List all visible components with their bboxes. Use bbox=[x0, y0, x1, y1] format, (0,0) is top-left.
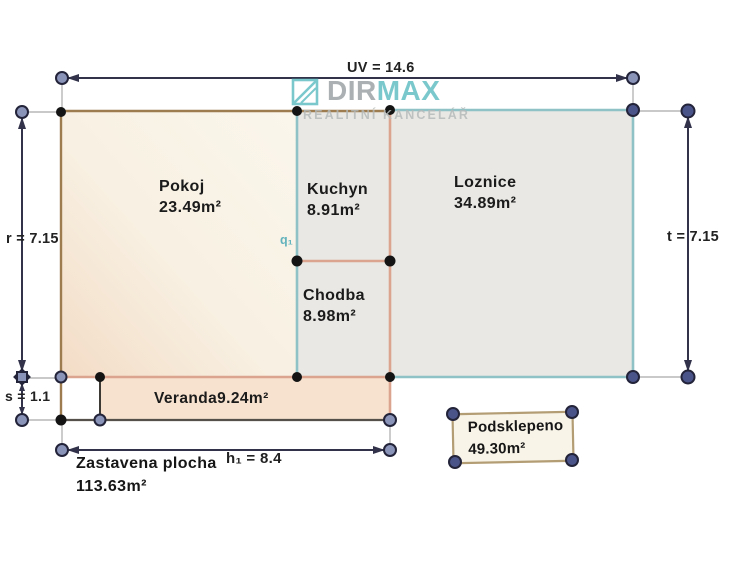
kuchyn-name: Kuchyn bbox=[307, 179, 368, 200]
chodba-name: Chodba bbox=[303, 285, 365, 306]
podsklepeno-label: Podsklepeno 49.30m² bbox=[468, 415, 564, 461]
podsklepeno-area-value: 49.30m² bbox=[468, 437, 564, 461]
podsklepeno-name: Podsklepeno bbox=[468, 415, 564, 439]
brand-dir: DIR bbox=[327, 75, 377, 106]
kuchyn-chodba-area bbox=[297, 111, 390, 377]
dimension-top-label: UV = 14.6 bbox=[347, 58, 415, 79]
dimension-right-label: t = 7.15 bbox=[667, 227, 719, 248]
veranda-area-value: 9.24m² bbox=[217, 390, 269, 407]
brand-tagline: REALITNÍ KANCELÁŘ bbox=[303, 108, 470, 122]
brand-max: MAX bbox=[377, 75, 441, 106]
built-up-area-value: 113.63m² bbox=[76, 475, 217, 498]
room-fills bbox=[62, 110, 633, 420]
brand-wordmark: DIRMAX bbox=[327, 77, 440, 105]
loznice-label: Loznice 34.89m² bbox=[454, 172, 516, 214]
partition-point-label: q₁ bbox=[280, 230, 293, 251]
pokoj-label: Pokoj 23.49m² bbox=[159, 176, 221, 218]
loznice-name: Loznice bbox=[454, 172, 516, 193]
built-up-area-name: Zastavena plocha bbox=[76, 452, 217, 475]
floor-plan-page: DIRMAX REALITNÍ KANCELÁŘ Pokoj 23.49m² K… bbox=[0, 0, 749, 562]
dimension-left-lower-label: s = 1.1 bbox=[5, 386, 50, 407]
loznice-area bbox=[390, 110, 633, 377]
kuchyn-area-value: 8.91m² bbox=[307, 200, 368, 221]
loznice-area-value: 34.89m² bbox=[454, 193, 516, 214]
dimension-bottom-label: h₁ = 8.4 bbox=[226, 448, 282, 469]
chodba-area-value: 8.98m² bbox=[303, 306, 365, 327]
pokoj-area-value: 23.49m² bbox=[159, 197, 221, 218]
brand-watermark: DIRMAX REALITNÍ KANCELÁŘ bbox=[291, 77, 470, 122]
pokoj-area bbox=[62, 112, 297, 377]
dimension-left-label: r = 7.15 bbox=[6, 229, 59, 250]
chodba-label: Chodba 8.98m² bbox=[303, 285, 365, 327]
pokoj-name: Pokoj bbox=[159, 176, 221, 197]
kuchyn-label: Kuchyn 8.91m² bbox=[307, 179, 368, 221]
veranda-name: Veranda bbox=[154, 390, 217, 407]
star-marker bbox=[15, 370, 30, 385]
dirmax-skylight-icon bbox=[291, 77, 320, 107]
built-up-area-label: Zastavena plocha 113.63m² bbox=[76, 452, 217, 498]
veranda-label: Veranda9.24m² bbox=[154, 388, 269, 409]
